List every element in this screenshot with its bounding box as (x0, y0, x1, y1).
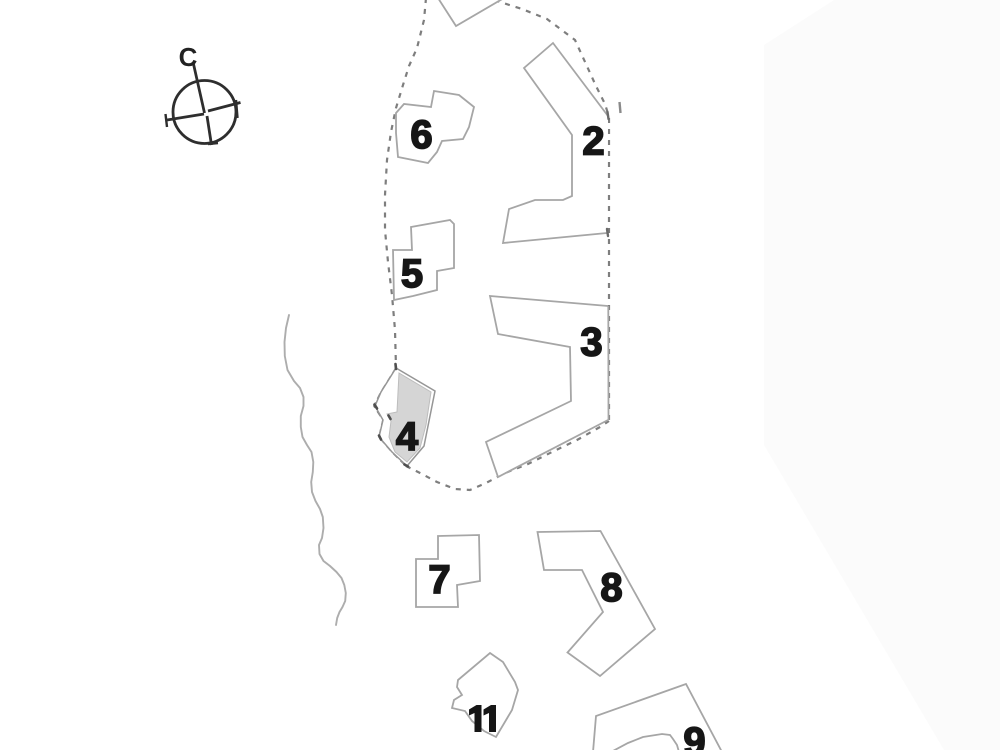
svg-text:3: 3 (580, 321, 602, 365)
svg-text:5: 5 (401, 252, 423, 296)
svg-text:8: 8 (600, 566, 622, 610)
svg-text:9: 9 (683, 720, 705, 750)
svg-text:4: 4 (396, 415, 419, 459)
svg-text:6: 6 (410, 113, 432, 157)
svg-text:7: 7 (428, 558, 450, 602)
svg-text:2: 2 (582, 120, 604, 164)
svg-text:С: С (179, 42, 198, 72)
